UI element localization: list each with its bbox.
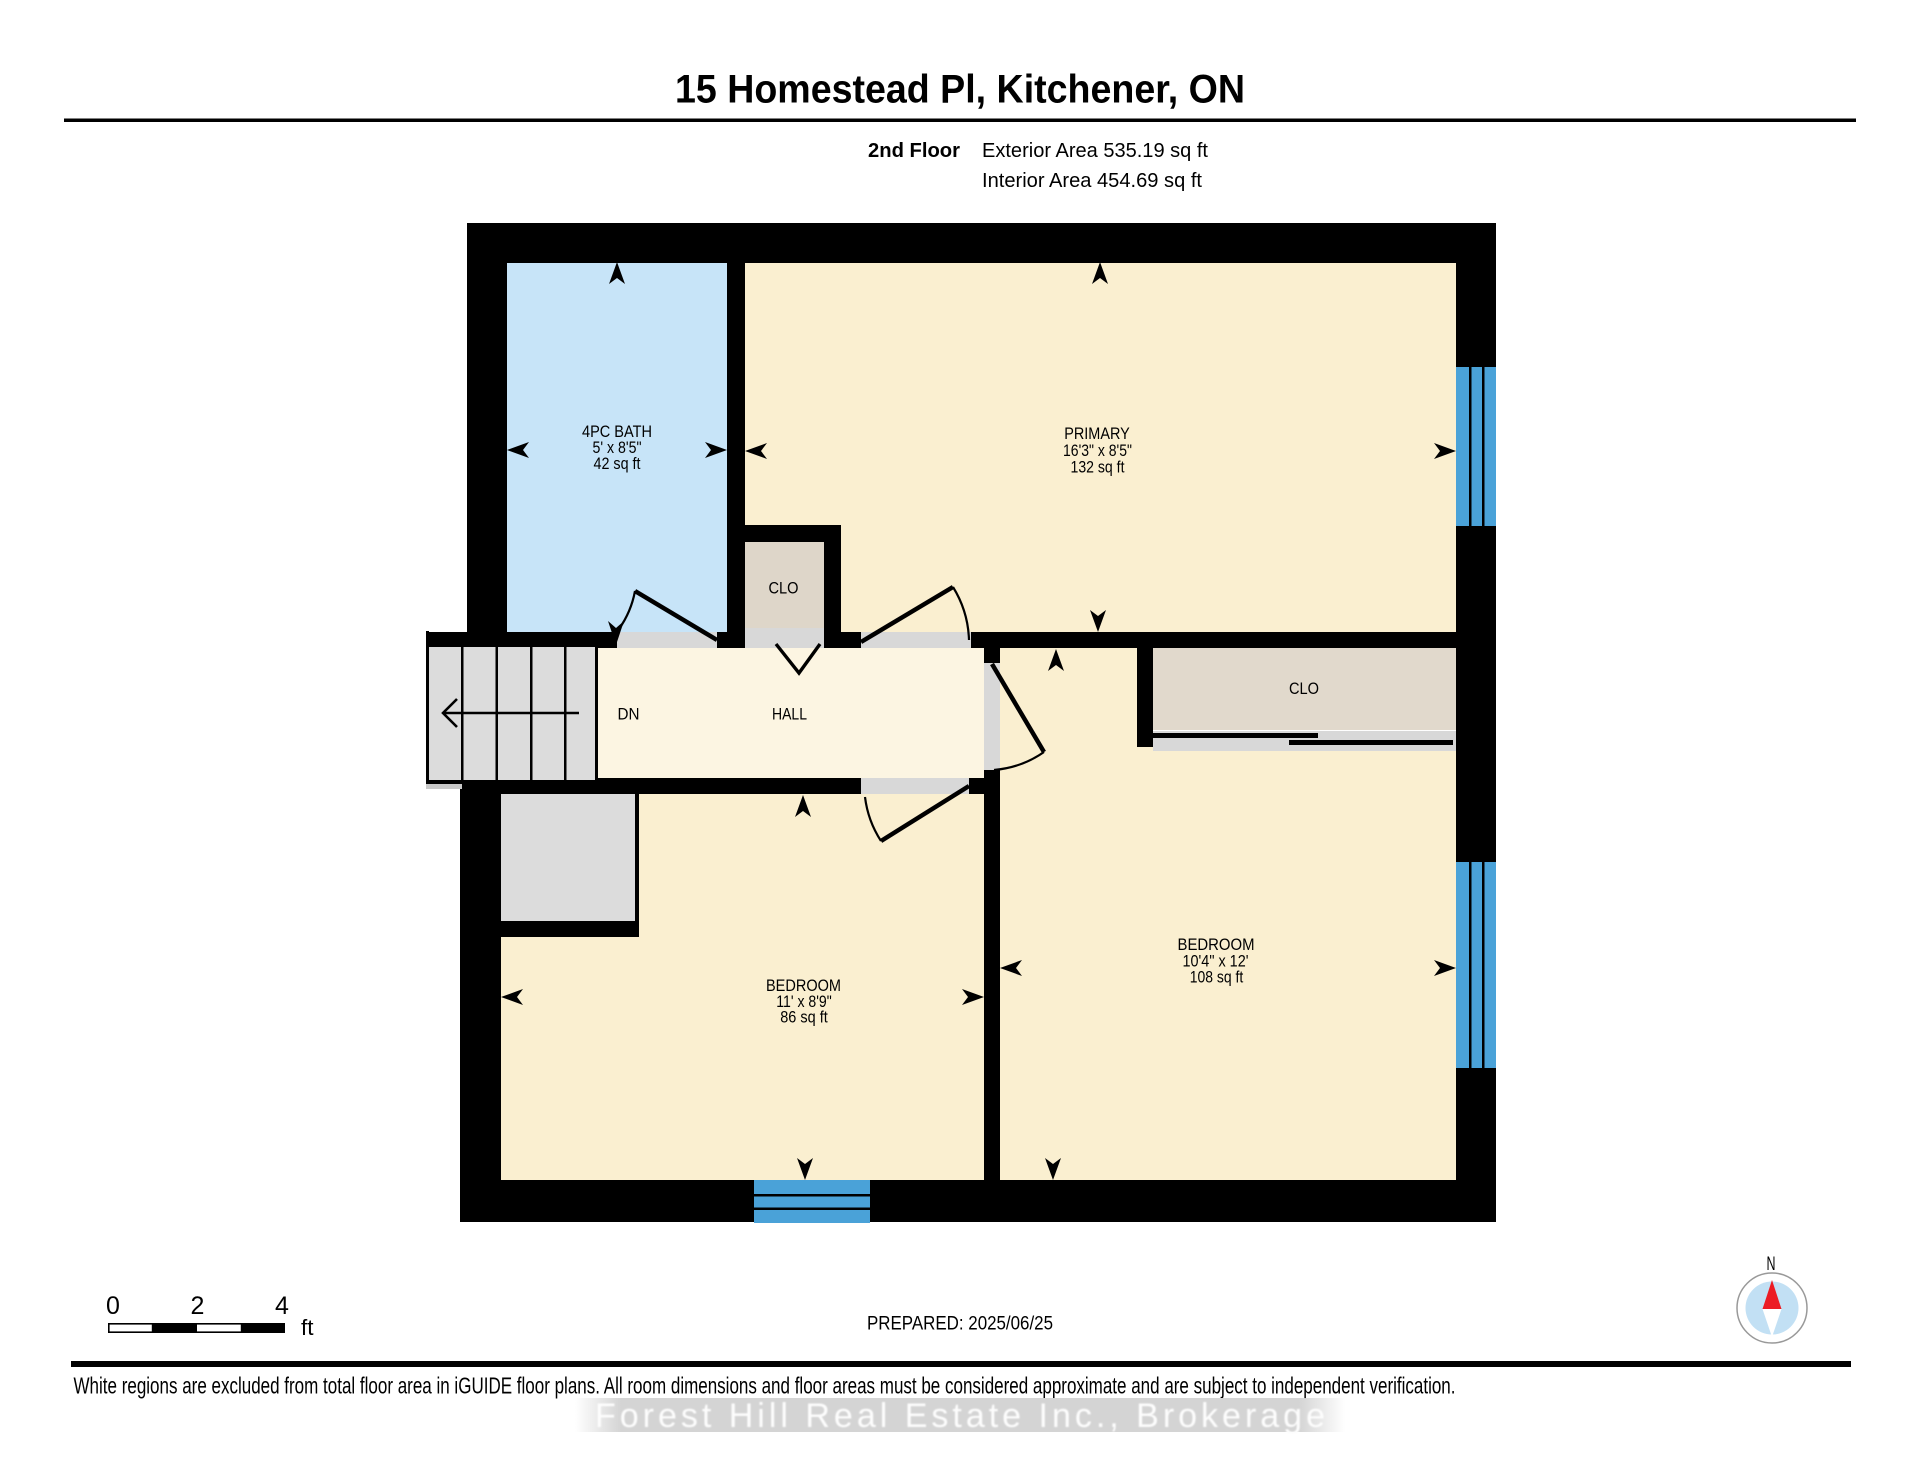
svg-text:Exterior Area 535.19 sq ft: Exterior Area 535.19 sq ft [982, 140, 1208, 162]
svg-text:PRIMARY: PRIMARY [1064, 425, 1130, 443]
svg-text:White regions are excluded fro: White regions are excluded from total fl… [74, 1373, 1456, 1399]
svg-text:BEDROOM: BEDROOM [1178, 936, 1255, 954]
svg-text:N: N [1767, 1254, 1776, 1275]
svg-text:CLO: CLO [769, 579, 799, 598]
svg-text:HALL: HALL [772, 706, 807, 724]
svg-text:DN: DN [618, 706, 640, 724]
svg-text:15 Homestead Pl, Kitchener, ON: 15 Homestead Pl, Kitchener, ON [675, 67, 1245, 111]
svg-text:CLO: CLO [1289, 679, 1319, 698]
svg-text:42 sq ft: 42 sq ft [594, 455, 641, 473]
svg-text:0: 0 [106, 1292, 120, 1320]
svg-text:4: 4 [275, 1292, 289, 1320]
svg-text:16'3" x 8'5": 16'3" x 8'5" [1063, 442, 1132, 460]
svg-text:2: 2 [191, 1292, 205, 1320]
svg-text:86 sq ft: 86 sq ft [780, 1009, 828, 1027]
svg-text:108 sq ft: 108 sq ft [1190, 969, 1244, 987]
svg-text:ft: ft [301, 1315, 314, 1340]
svg-text:2nd Floor: 2nd Floor [868, 140, 960, 162]
svg-text:Forest Hill Real Estate Inc.,: Forest Hill Real Estate Inc., Brokerage [595, 1397, 1325, 1435]
svg-text:Interior Area 454.69 sq ft: Interior Area 454.69 sq ft [982, 170, 1202, 192]
svg-text:132 sq ft: 132 sq ft [1071, 459, 1125, 477]
svg-text:PREPARED: 2025/06/25: PREPARED: 2025/06/25 [867, 1313, 1053, 1334]
